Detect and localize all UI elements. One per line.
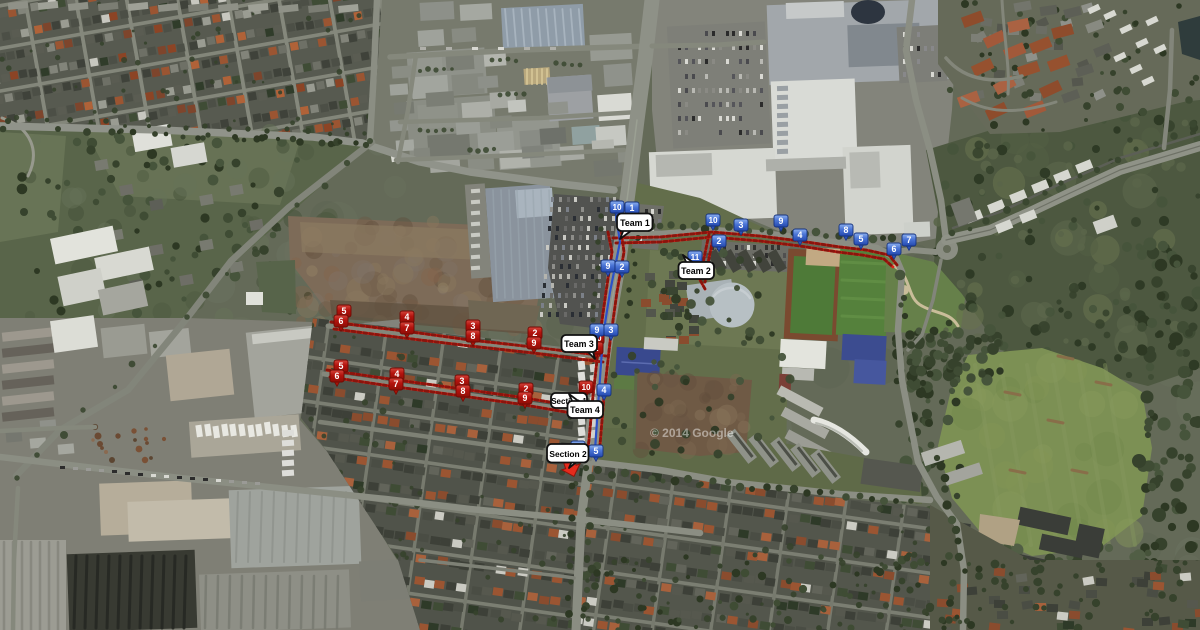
svg-text:© 2014 Google: © 2014 Google <box>650 426 734 440</box>
svg-text:6: 6 <box>339 316 344 326</box>
svg-text:5: 5 <box>342 306 347 316</box>
